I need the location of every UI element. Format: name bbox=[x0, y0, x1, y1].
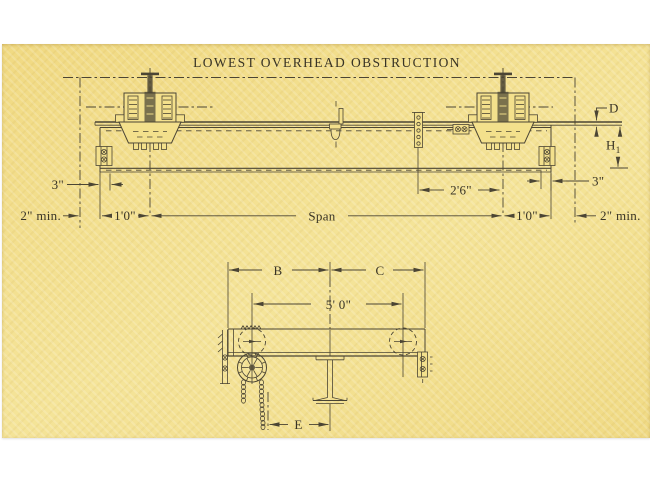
elevation-view: LOWEST OVERHEAD OBSTRUCTION bbox=[20, 55, 640, 228]
h1-label: H1 bbox=[606, 138, 621, 156]
dim-1ft-left: 1'0" bbox=[102, 208, 149, 223]
left-trolley-clamp bbox=[116, 73, 185, 150]
dim-h1: H1 bbox=[606, 127, 621, 167]
dim-2min-right: 2" min. bbox=[577, 208, 641, 223]
dim-1ft-right: 1'0" bbox=[505, 208, 550, 223]
dim-span: Span bbox=[152, 209, 502, 224]
runway-rail bbox=[100, 168, 628, 172]
center-hanger bbox=[330, 101, 344, 148]
dim-c: C bbox=[332, 263, 424, 278]
end-stop-bracket-right bbox=[418, 352, 433, 383]
suspension-plate bbox=[412, 113, 425, 148]
b-label: B bbox=[274, 263, 283, 278]
left-3in-label: 3" bbox=[52, 177, 64, 192]
left-hanger-bracket bbox=[96, 147, 112, 166]
hoist-hand-wheel bbox=[238, 353, 267, 382]
dim-3in-right: 3" bbox=[527, 171, 604, 191]
dim-d: D bbox=[597, 101, 619, 135]
e-label: E bbox=[294, 417, 302, 432]
scanned-page: LOWEST OVERHEAD OBSTRUCTION bbox=[0, 0, 650, 490]
crane-drawing: LOWEST OVERHEAD OBSTRUCTION bbox=[0, 0, 650, 490]
left-1ft-label: 1'0" bbox=[114, 208, 136, 223]
runway-ibeam-section bbox=[313, 356, 347, 431]
dim-3in-left: 3" bbox=[52, 174, 123, 193]
5ft-label: 5' 0" bbox=[326, 297, 351, 312]
right-3in-label: 3" bbox=[592, 174, 604, 189]
beam-fitting bbox=[447, 125, 469, 135]
drawing-title: LOWEST OVERHEAD OBSTRUCTION bbox=[193, 55, 461, 70]
c-label: C bbox=[376, 263, 385, 278]
2ft6-label: 2'6" bbox=[450, 183, 472, 198]
right-1ft-label: 1'0" bbox=[516, 208, 538, 223]
right-hanger-bracket bbox=[539, 147, 555, 166]
end-view: B C 5' 0" bbox=[218, 262, 433, 432]
d-label: D bbox=[609, 101, 619, 116]
dim-b: B bbox=[229, 263, 329, 278]
dim-2ft6: 2'6" bbox=[420, 183, 500, 198]
left-2min-label: 2" min. bbox=[20, 208, 61, 223]
hoist-chains bbox=[242, 380, 266, 430]
right-2min-label: 2" min. bbox=[600, 208, 641, 223]
dim-e: E bbox=[268, 392, 329, 432]
end-girder bbox=[228, 326, 425, 356]
span-label: Span bbox=[308, 209, 335, 224]
right-trolley-clamp bbox=[469, 73, 538, 150]
dim-2min-left: 2" min. bbox=[20, 208, 78, 223]
dim-5ft: 5' 0" bbox=[254, 297, 402, 312]
